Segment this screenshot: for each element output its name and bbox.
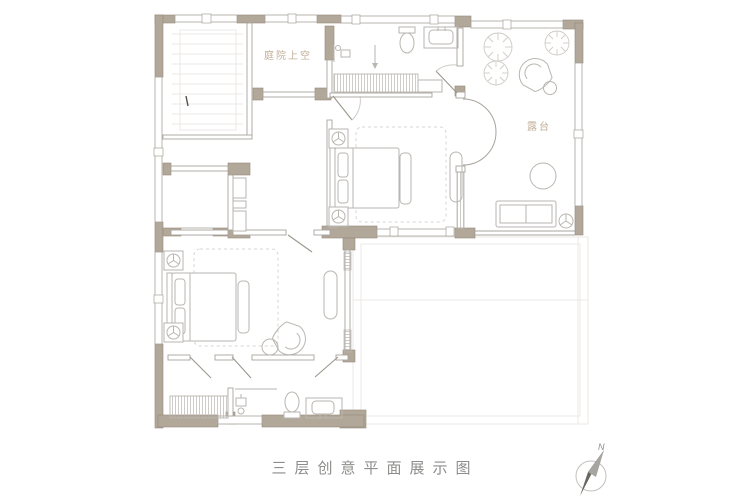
top-bathroom	[334, 27, 458, 92]
hall-wardrobe	[334, 74, 442, 92]
tree	[484, 33, 512, 61]
swing-arrow	[372, 45, 378, 69]
master-bed	[330, 148, 411, 208]
guest-bedroom	[164, 249, 337, 361]
compass-north-label: N	[598, 442, 605, 452]
corner-plant	[559, 214, 573, 228]
toilet	[399, 27, 415, 53]
nightstand-lamp	[164, 323, 183, 342]
shower-fixture	[236, 394, 246, 414]
master-bedroom	[329, 127, 462, 226]
floor-plan-canvas: 庭院上空 露台 N	[0, 0, 750, 500]
shower-fixture	[334, 44, 350, 62]
interior-walls	[163, 23, 465, 416]
lounge-chair	[513, 52, 557, 96]
towel-radiator	[170, 396, 228, 418]
bath-lobby-door	[190, 357, 211, 378]
french-double-door	[463, 99, 496, 165]
plan-title: 三层创意平面展示图	[0, 457, 750, 478]
floor-plan-page: 庭院上空 露台 N 三层创意平面展示图	[0, 0, 750, 500]
round-table	[530, 163, 556, 189]
wc-door	[315, 357, 338, 377]
bottom-bathroom	[170, 389, 342, 418]
tree	[484, 61, 508, 85]
staircase	[172, 30, 243, 130]
ottoman	[262, 339, 278, 355]
courtyard-void-label: 庭院上空	[264, 49, 312, 62]
vanity-sink	[424, 27, 458, 48]
bench-sofa	[496, 201, 556, 227]
tree	[545, 31, 569, 55]
roof-below-outline	[353, 237, 588, 424]
side-table	[544, 82, 557, 95]
standing-mirror	[324, 271, 337, 319]
master-bedroom-door	[333, 96, 360, 120]
hall-terrace-door	[436, 65, 457, 93]
toilet	[284, 392, 300, 418]
terrace-label: 露台	[527, 120, 551, 133]
nightstand-lamp	[329, 207, 348, 226]
nightstand-lamp	[329, 129, 348, 148]
shower-room-door	[232, 357, 251, 378]
guest-bedroom-door	[288, 235, 312, 252]
nightstand-lamp	[164, 251, 183, 270]
walk-in-closet	[233, 178, 246, 231]
